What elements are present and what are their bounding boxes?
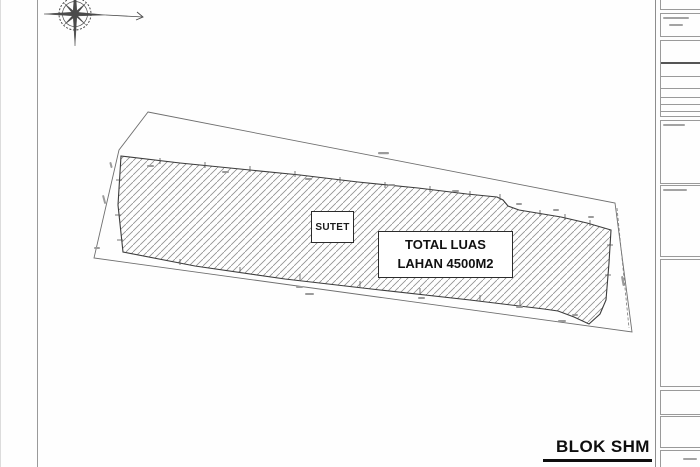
title-block-cell — [660, 0, 700, 10]
block-title: BLOK SHM — [556, 437, 650, 457]
drawing-sheet: SUTET TOTAL LUAS LAHAN 4500M2 BLOK SHM — [0, 0, 700, 467]
right-dimension-line — [617, 208, 629, 328]
land-parcel-hatched — [118, 156, 611, 324]
title-block-cell — [660, 450, 700, 467]
title-block-cell — [660, 390, 700, 415]
title-block-cell — [660, 416, 700, 448]
title-block-cell — [660, 13, 700, 37]
sutet-label-box: SUTET — [311, 211, 354, 243]
title-block-cell — [660, 259, 700, 387]
title-block-cell — [660, 185, 700, 257]
title-block-column — [655, 0, 700, 467]
total-area-line2: LAHAN 4500M2 — [397, 255, 493, 274]
sutet-label: SUTET — [315, 222, 349, 233]
title-block-cell — [660, 120, 700, 184]
total-area-line1: TOTAL LUAS — [405, 236, 486, 255]
total-area-label-box: TOTAL LUAS LAHAN 4500M2 — [378, 231, 513, 278]
parcel-polygon — [118, 156, 611, 324]
block-title-underline — [543, 459, 652, 462]
title-block-cell — [660, 40, 700, 117]
compass-rose-icon — [44, 0, 143, 46]
